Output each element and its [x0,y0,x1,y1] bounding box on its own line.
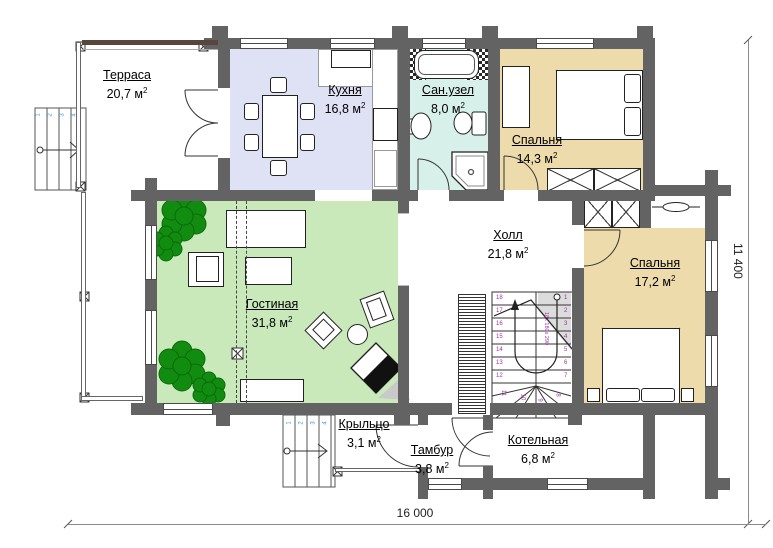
log-end [718,478,730,490]
wall [483,466,493,478]
shower-icon [452,152,488,190]
wall [418,415,428,425]
stair-number: 7 [564,373,567,379]
log-end [482,26,498,38]
kitchen-appliance [374,150,397,187]
pillow [606,388,640,402]
stair-number: 9 [537,398,543,401]
floor-plan: Терраса 20,7 м2 Кухня 16,8 м2 Сан.узел 8… [0,0,773,548]
stair-number: 10 [519,394,525,401]
wall [490,403,718,415]
wall [488,38,500,201]
chair [270,77,287,93]
log-end [131,403,145,415]
log-end [394,415,410,425]
porch-railing [335,468,420,472]
pillow [624,74,641,103]
pillow [641,388,675,402]
wall [372,190,418,201]
armchair-seat [196,256,219,282]
room-label-boiler: Котельная 6,8 м2 [508,433,569,467]
staircase [492,292,573,418]
round-table [347,324,368,345]
stair-number: 11 [500,390,506,396]
stove [373,108,398,141]
room-label-living: Гостиная 31,8 м2 [246,297,298,331]
log-end [418,490,428,499]
log-end [145,178,157,190]
stair-number: 5 [564,347,567,353]
tv-icon [652,203,700,212]
stair-number: 16 [496,321,503,327]
step-number: 4 [72,113,78,116]
step-number: 4 [323,421,329,424]
wall [398,201,409,213]
chair [270,160,287,176]
stair-number: 1 [564,295,567,301]
stair-number: 18 [496,295,503,301]
wall [398,38,410,201]
wall [218,158,230,201]
wall [572,268,584,403]
chair [244,134,259,151]
stair-number: 2 [564,308,567,314]
kitchen-sink [331,50,371,68]
log-end [705,170,718,186]
window [428,478,462,490]
stair-start-post [554,294,560,300]
terrace-edge [82,40,218,45]
nightstand [681,388,694,402]
log-end [216,415,230,426]
armchair-seat [312,318,335,341]
wall [483,415,493,430]
opening-jambs [315,190,409,286]
dimension-line-bottom [68,524,766,525]
wardrobe [594,168,641,192]
dimension-height: 11 400 [731,243,745,279]
window [536,38,594,49]
dimension-line-right [748,40,749,524]
wall [643,38,655,196]
wall [643,415,655,490]
window [547,478,588,490]
room-label-bedroom2: Спальня 17,2 м2 [630,256,680,290]
step-number: 2 [48,113,54,116]
radiator [458,294,486,414]
dresser [502,66,530,128]
wall [145,190,157,415]
log-end [131,190,145,201]
stair-number: 4 [564,334,567,340]
room-label-terrace: Терраса 20,7 м2 [103,68,151,102]
log-end [568,415,582,425]
wardrobe [547,168,594,192]
step-number: 1 [287,421,293,424]
wall [398,286,409,403]
wall [640,196,651,228]
stair-number: 13 [496,360,503,366]
room-label-bedroom1: Спальня 14,3 м2 [512,133,562,167]
pillow [624,107,641,136]
porch-steps [283,415,335,487]
wall [145,190,315,201]
chair [300,103,315,120]
coffee-table [245,257,292,285]
stair-number: 3 [564,321,567,327]
window [145,310,157,365]
wall [218,38,230,88]
log-end [392,26,408,38]
armchair [188,252,224,287]
wall [538,190,655,201]
stair-number: 6 [564,360,567,366]
window [163,403,213,415]
window [422,38,466,49]
terrace-edge-line [82,49,218,50]
log-end [637,26,653,38]
nightstand [587,388,600,402]
window [705,335,718,387]
window [240,38,288,49]
stair-annotation: 18x 180x 290 [543,312,549,345]
stair-number: 8 [555,393,561,396]
dimension-width: 16 000 [385,506,445,520]
room-label-kitchen: Кухня 16,8 м2 [325,83,366,117]
opening [315,190,372,201]
stair-number: 17 [496,308,503,314]
stair-number: 14 [496,347,503,353]
dining-table [262,95,298,158]
wall [572,201,584,225]
step-number: 1 [36,113,42,116]
plant-icon [150,192,225,406]
step-number: 3 [311,421,317,424]
log-end [705,490,718,499]
log-end [718,185,731,196]
tv-stand [240,379,304,402]
window [145,225,157,280]
room-label-hall: Холл 21,8 м2 [488,228,529,262]
room-label-bathroom: Сан.узел 8,0 м2 [422,83,474,117]
window [705,240,718,292]
terrace-railing [81,192,86,400]
chair [300,134,315,151]
log-end [643,490,655,499]
terrace-railing [81,396,143,401]
step-number: 2 [299,421,305,424]
window [330,38,375,49]
log-end [212,26,228,38]
room-label-vestibule: Тамбур 3,8 м2 [411,443,453,477]
bathtub-inner [418,54,475,75]
log-end [483,490,493,499]
room-label-porch: Крыльцо 3,1 м2 [339,417,390,451]
step-number: 3 [60,113,66,116]
stair-number: 12 [496,373,503,379]
stair-number: 15 [496,334,503,340]
armchair-seat [366,297,387,321]
chair [244,103,259,120]
